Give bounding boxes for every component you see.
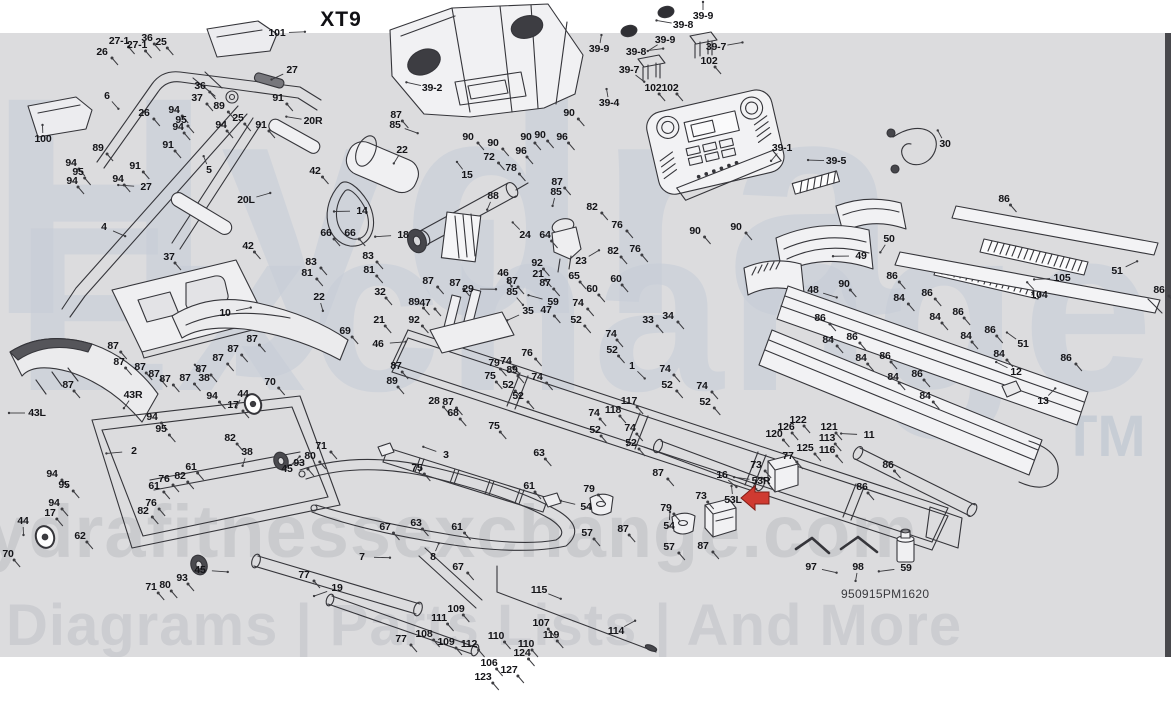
part-label-10: 10 (219, 308, 230, 319)
part-label-90: 90 (730, 222, 741, 233)
part-label-87: 87 (159, 374, 170, 385)
part-label-61: 61 (148, 481, 159, 492)
part-label-87: 87 (179, 373, 190, 384)
part-label-87: 87 (212, 353, 223, 364)
part-label-74: 74 (531, 372, 542, 383)
part-label-5: 5 (206, 165, 212, 176)
part-label-90: 90 (487, 138, 498, 149)
part-label-36: 36 (194, 81, 205, 92)
part-label-86: 86 (998, 194, 1009, 205)
part-label-67: 67 (452, 562, 463, 573)
part-label-75: 75 (411, 463, 422, 474)
part-label-124: 124 (514, 648, 531, 659)
part-label-73: 73 (750, 460, 761, 471)
part-label-52: 52 (589, 425, 600, 436)
part-label-92: 92 (531, 258, 542, 269)
part-label-82: 82 (137, 506, 148, 517)
part-label-46: 46 (372, 339, 383, 350)
part-label-67: 67 (379, 522, 390, 533)
part-label-89: 89 (386, 376, 397, 387)
part-label-70: 70 (264, 377, 275, 388)
part-label-38: 38 (241, 447, 252, 458)
part-label-91: 91 (129, 161, 140, 172)
part-label-73: 73 (695, 491, 706, 502)
part-label-62: 62 (74, 531, 85, 542)
part-label-53L: 53L (724, 495, 742, 506)
part-label-65: 65 (568, 271, 579, 282)
part-label-90: 90 (838, 279, 849, 290)
part-label-76: 76 (629, 244, 640, 255)
part-label-52: 52 (502, 380, 513, 391)
part-label-43R: 43R (124, 390, 143, 401)
part-label-2: 2 (131, 446, 137, 457)
part-label-95: 95 (155, 424, 166, 435)
part-label-37: 37 (191, 93, 202, 104)
part-label-86: 86 (921, 288, 932, 299)
part-label-39-2: 39-2 (422, 83, 442, 94)
part-label-76: 76 (158, 474, 169, 485)
part-label-80: 80 (304, 451, 315, 462)
part-label-61: 61 (451, 522, 462, 533)
part-label-86: 86 (984, 325, 995, 336)
part-label-39-4: 39-4 (599, 98, 619, 109)
part-labels-layer: 2627-127-1362510162791363789949594942591… (0, 0, 1171, 703)
part-label-77: 77 (782, 451, 793, 462)
part-label-68: 68 (447, 408, 458, 419)
part-label-89: 89 (213, 101, 224, 112)
part-label-37: 37 (163, 252, 174, 263)
part-label-87: 87 (390, 361, 401, 372)
part-label-86: 86 (1153, 285, 1164, 296)
part-label-94: 94 (46, 469, 57, 480)
part-label-82: 82 (586, 202, 597, 213)
part-label-87: 87 (227, 344, 238, 355)
part-label-66: 66 (344, 228, 355, 239)
part-label-85: 85 (389, 120, 400, 131)
part-label-53R: 53R (752, 476, 771, 487)
part-label-11: 11 (864, 430, 875, 441)
part-label-80: 80 (159, 580, 170, 591)
part-label-54: 54 (580, 502, 591, 513)
part-label-84: 84 (887, 372, 898, 383)
part-label-39-5: 39-5 (826, 156, 846, 167)
part-label-86: 86 (952, 307, 963, 318)
part-label-94: 94 (146, 412, 157, 423)
part-label-84: 84 (993, 349, 1004, 360)
part-label-84: 84 (960, 331, 971, 342)
part-label-32: 32 (374, 287, 385, 298)
part-label-39-7: 39-7 (706, 42, 726, 53)
part-label-89: 89 (92, 143, 103, 154)
part-label-102: 102 (701, 56, 718, 67)
part-label-64: 64 (539, 230, 550, 241)
part-label-123: 123 (475, 672, 492, 683)
part-label-82: 82 (224, 433, 235, 444)
part-label-57: 57 (581, 528, 592, 539)
part-label-39-9: 39-9 (693, 11, 713, 22)
part-label-36: 36 (141, 33, 152, 44)
part-label-45: 45 (194, 565, 205, 576)
part-label-22: 22 (313, 292, 324, 303)
part-label-75: 75 (488, 421, 499, 432)
part-label-83: 83 (362, 251, 373, 262)
part-label-25: 25 (232, 113, 243, 124)
part-label-52: 52 (699, 397, 710, 408)
part-label-98: 98 (852, 562, 863, 573)
part-label-26: 26 (96, 47, 107, 58)
part-label-52: 52 (661, 380, 672, 391)
part-label-87: 87 (62, 380, 73, 391)
part-label-79: 79 (660, 503, 671, 514)
part-label-82: 82 (174, 471, 185, 482)
part-label-66: 66 (320, 228, 331, 239)
part-label-69: 69 (339, 326, 350, 337)
part-label-87: 87 (148, 369, 159, 380)
part-label-4: 4 (101, 222, 107, 233)
part-label-127: 127 (501, 665, 518, 676)
part-label-115: 115 (531, 585, 547, 596)
part-label-6: 6 (104, 91, 110, 102)
part-label-8: 8 (430, 552, 436, 563)
part-label-110: 110 (488, 631, 504, 642)
part-label-49: 49 (855, 251, 866, 262)
part-label-20L: 20L (237, 195, 255, 206)
part-label-44: 44 (237, 389, 248, 400)
part-label-116: 116 (819, 445, 835, 456)
part-label-89: 89 (408, 297, 419, 308)
part-label-47: 47 (540, 305, 551, 316)
parts-diagram-page: { "title": "XT9", "part_number": "950915… (0, 0, 1171, 703)
part-label-90: 90 (534, 130, 545, 141)
diagram-title: XT9 (320, 8, 362, 32)
part-label-96: 96 (515, 146, 526, 157)
part-label-85: 85 (506, 287, 517, 298)
part-label-91: 91 (162, 140, 173, 151)
part-label-87: 87 (442, 397, 453, 408)
part-label-100: 100 (35, 134, 52, 145)
part-label-52: 52 (570, 315, 581, 326)
part-label-87: 87 (134, 362, 145, 373)
part-label-102: 102 (662, 83, 679, 94)
part-label-21: 21 (373, 315, 384, 326)
part-label-57: 57 (663, 542, 674, 553)
part-label-42: 42 (242, 241, 253, 252)
part-label-84: 84 (822, 335, 833, 346)
part-label-109: 109 (448, 604, 465, 615)
part-label-119: 119 (543, 630, 559, 641)
part-label-90: 90 (462, 132, 473, 143)
part-label-29: 29 (462, 284, 473, 295)
part-label-117: 117 (621, 396, 637, 407)
part-label-1: 1 (629, 361, 635, 372)
part-label-88: 88 (487, 191, 498, 202)
part-label-86: 86 (886, 271, 897, 282)
part-label-78: 78 (505, 163, 516, 174)
part-label-118: 118 (605, 405, 621, 416)
part-label-101: 101 (269, 28, 286, 39)
part-label-87: 87 (697, 541, 708, 552)
part-label-54: 54 (663, 521, 674, 532)
part-label-79: 79 (583, 484, 594, 495)
part-label-87: 87 (113, 357, 124, 368)
part-label-19: 19 (331, 583, 342, 594)
part-label-83: 83 (305, 257, 316, 268)
part-label-87: 87 (246, 334, 257, 345)
part-label-39-9: 39-9 (655, 35, 675, 46)
part-label-104: 104 (1031, 290, 1048, 301)
part-label-91: 91 (272, 93, 283, 104)
part-label-87: 87 (506, 276, 517, 287)
part-label-61: 61 (185, 462, 196, 473)
part-label-113: 113 (819, 433, 835, 444)
part-label-39-9: 39-9 (589, 44, 609, 55)
part-label-14: 14 (356, 206, 367, 217)
part-label-74: 74 (624, 423, 635, 434)
part-label-84: 84 (893, 293, 904, 304)
part-label-94: 94 (206, 391, 217, 402)
part-label-30: 30 (939, 139, 950, 150)
part-label-7: 7 (359, 552, 365, 563)
part-label-94: 94 (66, 176, 77, 187)
part-label-84: 84 (929, 312, 940, 323)
part-label-20R: 20R (304, 116, 323, 127)
part-label-52: 52 (606, 345, 617, 356)
part-label-93: 93 (293, 458, 304, 469)
part-label-47: 47 (419, 298, 430, 309)
part-label-108: 108 (416, 629, 433, 640)
part-label-63: 63 (410, 518, 421, 529)
part-label-63: 63 (533, 448, 544, 459)
part-label-27: 27 (140, 182, 151, 193)
part-label-86: 86 (856, 482, 867, 493)
part-label-87: 87 (449, 278, 460, 289)
part-label-109: 109 (438, 637, 455, 648)
part-label-59: 59 (900, 563, 911, 574)
part-label-81: 81 (301, 268, 312, 279)
part-label-87: 87 (107, 341, 118, 352)
part-label-114: 114 (608, 626, 624, 637)
part-label-76: 76 (611, 220, 622, 231)
part-label-90: 90 (689, 226, 700, 237)
part-label-27: 27 (286, 65, 297, 76)
part-label-112: 112 (461, 639, 477, 650)
part-label-111: 111 (431, 613, 447, 624)
part-label-75: 75 (484, 371, 495, 382)
part-label-23: 23 (575, 256, 586, 267)
part-label-86: 86 (911, 369, 922, 380)
part-label-61: 61 (523, 481, 534, 492)
part-label-82: 82 (607, 246, 618, 257)
part-label-39-8: 39-8 (626, 47, 646, 58)
part-label-22: 22 (396, 145, 407, 156)
part-label-120: 120 (766, 429, 783, 440)
part-label-26: 26 (138, 108, 149, 119)
part-label-85: 85 (550, 187, 561, 198)
part-label-33: 33 (642, 315, 653, 326)
part-label-87: 87 (422, 276, 433, 287)
part-label-94: 94 (112, 174, 123, 185)
part-label-13: 13 (1037, 396, 1048, 407)
part-label-90: 90 (520, 132, 531, 143)
part-label-86: 86 (882, 460, 893, 471)
part-label-94: 94 (172, 122, 183, 133)
part-label-77: 77 (298, 570, 309, 581)
part-label-74: 74 (572, 298, 583, 309)
part-label-87: 87 (652, 468, 663, 479)
part-label-77: 77 (395, 634, 406, 645)
part-label-3: 3 (443, 450, 449, 461)
part-label-86: 86 (1060, 353, 1071, 364)
part-label-93: 93 (176, 573, 187, 584)
part-label-81: 81 (363, 265, 374, 276)
part-label-60: 60 (610, 274, 621, 285)
part-label-74: 74 (605, 329, 616, 340)
part-label-94: 94 (215, 120, 226, 131)
part-label-86: 86 (846, 332, 857, 343)
part-label-35: 35 (522, 306, 533, 317)
part-label-79: 79 (488, 358, 499, 369)
part-label-87: 87 (617, 524, 628, 535)
part-label-28: 28 (428, 396, 439, 407)
part-label-107: 107 (533, 618, 550, 629)
part-label-102: 102 (645, 83, 662, 94)
part-label-74: 74 (588, 408, 599, 419)
part-label-91: 91 (255, 120, 266, 131)
part-label-74: 74 (696, 381, 707, 392)
part-label-51: 51 (1111, 266, 1122, 277)
part-label-97: 97 (805, 562, 816, 573)
part-label-105: 105 (1054, 273, 1071, 284)
part-label-87: 87 (539, 278, 550, 289)
part-label-71: 71 (145, 582, 156, 593)
part-label-39-8: 39-8 (673, 20, 693, 31)
part-label-51: 51 (1017, 339, 1028, 350)
part-label-84: 84 (919, 391, 930, 402)
part-label-50: 50 (883, 234, 894, 245)
part-label-44: 44 (17, 516, 28, 527)
part-label-39-1: 39-1 (772, 143, 792, 154)
part-label-15: 15 (461, 170, 472, 181)
part-label-125: 125 (797, 443, 814, 454)
part-label-95: 95 (58, 480, 69, 491)
part-label-38: 38 (198, 373, 209, 384)
part-label-106: 106 (481, 658, 498, 669)
part-label-12: 12 (1010, 367, 1021, 378)
part-label-42: 42 (309, 166, 320, 177)
part-label-52: 52 (625, 438, 636, 449)
part-label-74: 74 (659, 364, 670, 375)
part-label-60: 60 (586, 284, 597, 295)
part-label-43L: 43L (28, 408, 46, 419)
part-label-34: 34 (662, 311, 673, 322)
part-label-45: 45 (281, 464, 292, 475)
drawing-number: 950915PM1620 (841, 587, 929, 601)
part-label-86: 86 (814, 313, 825, 324)
part-label-16: 16 (716, 470, 727, 481)
part-label-72: 72 (483, 152, 494, 163)
part-label-24: 24 (519, 230, 530, 241)
part-label-17: 17 (44, 508, 55, 519)
part-label-18: 18 (397, 230, 408, 241)
part-label-52: 52 (512, 391, 523, 402)
part-label-39-7: 39-7 (619, 65, 639, 76)
part-label-25: 25 (155, 37, 166, 48)
part-label-121: 121 (821, 422, 838, 433)
part-label-90: 90 (563, 108, 574, 119)
part-label-71: 71 (315, 441, 326, 452)
part-label-48: 48 (807, 285, 818, 296)
part-label-76: 76 (521, 348, 532, 359)
part-label-70: 70 (2, 549, 13, 560)
part-label-92: 92 (408, 315, 419, 326)
part-label-96: 96 (556, 132, 567, 143)
part-label-86: 86 (879, 351, 890, 362)
part-label-84: 84 (855, 353, 866, 364)
part-label-17: 17 (227, 400, 238, 411)
part-label-89: 89 (506, 365, 517, 376)
